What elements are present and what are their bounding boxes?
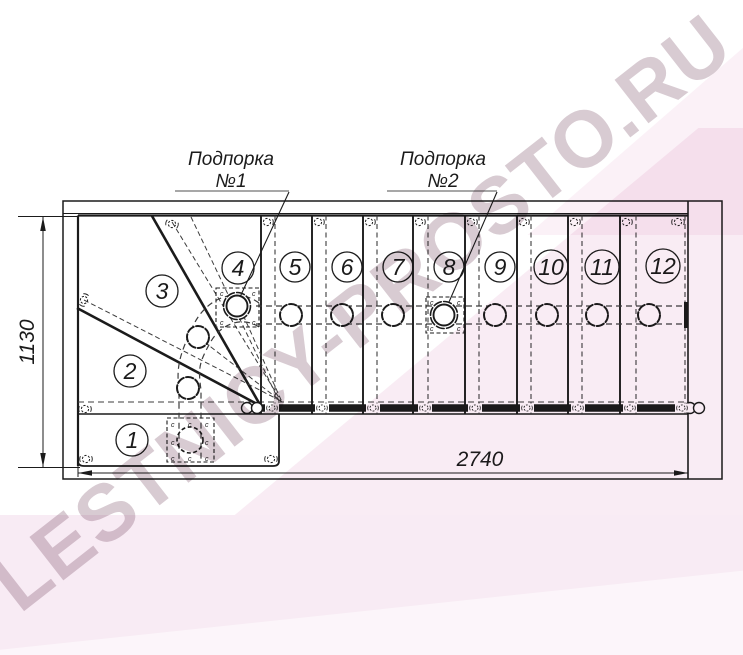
svg-text:8: 8 xyxy=(443,254,456,280)
newel-post-bottom xyxy=(177,427,203,453)
svg-text:c: c xyxy=(171,456,175,463)
svg-text:c: c xyxy=(430,300,434,307)
staircase-plan-svg: 1130 2740 xyxy=(0,0,743,655)
winder-post xyxy=(187,326,209,348)
svg-text:c: c xyxy=(205,422,209,429)
svg-text:c: c xyxy=(188,422,192,429)
svg-text:3: 3 xyxy=(156,278,169,304)
outer-border xyxy=(63,201,722,479)
support-plates xyxy=(167,288,464,462)
svg-text:c: c xyxy=(252,291,256,298)
support2-leader-line xyxy=(449,192,497,302)
support2-label: Подпорка xyxy=(400,149,486,170)
baluster-post xyxy=(484,304,506,326)
svg-text:c: c xyxy=(171,422,175,429)
drawing-page: 1130 2740 xyxy=(0,0,743,655)
support-post-1 xyxy=(224,293,251,320)
svg-text:9: 9 xyxy=(494,254,507,280)
dimension-horizontal-value: 2740 xyxy=(456,448,504,471)
svg-text:6: 6 xyxy=(341,254,354,280)
baluster-post xyxy=(382,304,404,326)
svg-text:12: 12 xyxy=(650,253,676,279)
svg-text:11: 11 xyxy=(590,254,614,280)
svg-text:5: 5 xyxy=(289,254,302,280)
svg-text:c: c xyxy=(457,326,461,333)
step-numbers xyxy=(114,249,680,456)
dimension-horizontal xyxy=(78,414,688,477)
support1-leader-line xyxy=(240,192,289,297)
svg-text:c: c xyxy=(205,440,209,447)
svg-text:c: c xyxy=(205,456,209,463)
svg-text:4: 4 xyxy=(232,255,245,281)
svg-text:c: c xyxy=(252,320,256,327)
baluster-post xyxy=(331,304,353,326)
svg-text:1: 1 xyxy=(126,427,139,453)
svg-text:c: c xyxy=(430,326,434,333)
baluster-post xyxy=(536,304,558,326)
support-post-2 xyxy=(431,302,458,329)
support1-number: №1 xyxy=(215,171,246,192)
stringer-connectors xyxy=(265,404,689,413)
svg-text:c: c xyxy=(188,456,192,463)
svg-text:c: c xyxy=(220,291,224,298)
baluster-post xyxy=(638,304,660,326)
baluster-post xyxy=(586,304,608,326)
stair-body-outline xyxy=(78,201,688,479)
baluster-post xyxy=(280,304,302,326)
svg-text:c: c xyxy=(457,300,461,307)
svg-text:2: 2 xyxy=(123,358,137,384)
svg-text:c: c xyxy=(171,440,175,447)
svg-text:c: c xyxy=(220,320,224,327)
baluster-posts xyxy=(177,293,660,454)
svg-text:7: 7 xyxy=(392,254,406,280)
dimension-vertical-value: 1130 xyxy=(16,319,39,364)
support1-label: Подпорка xyxy=(188,149,274,170)
support2-number: №2 xyxy=(427,171,459,192)
svg-text:10: 10 xyxy=(538,254,564,280)
winder-post xyxy=(177,377,199,399)
